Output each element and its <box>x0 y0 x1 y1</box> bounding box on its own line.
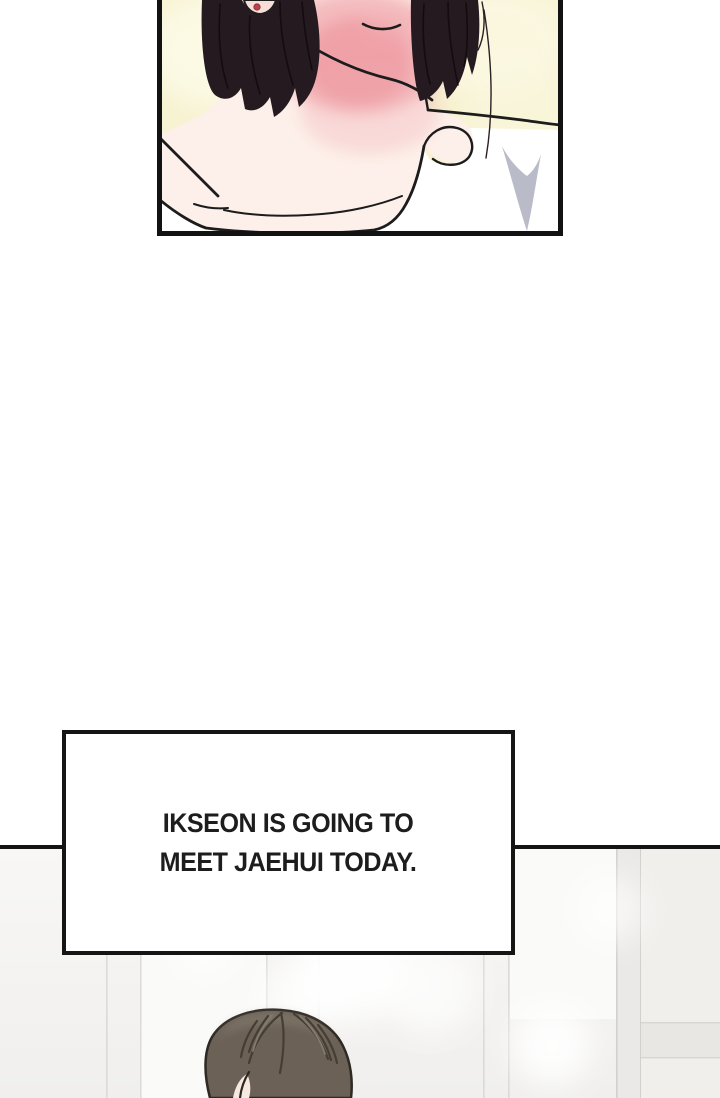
narration-box: IKSEON IS GOING TO MEET JAEHUI TODAY. <box>62 730 515 955</box>
wall-right <box>641 849 720 1098</box>
narration-line-1: IKSEON IS GOING TO <box>160 804 417 843</box>
panel-neck-closeup <box>157 0 563 236</box>
comic-page: IKSEON IS GOING TO MEET JAEHUI TODAY. <box>0 0 720 1098</box>
narration-text: IKSEON IS GOING TO MEET JAEHUI TODAY. <box>160 804 417 882</box>
earring <box>254 4 260 10</box>
wall-right-band-edge-top <box>641 1022 720 1023</box>
narration-line-2: MEET JAEHUI TODAY. <box>160 843 417 882</box>
wall-right-band-edge-bottom <box>641 1057 720 1058</box>
panel-neck-closeup-art <box>162 0 558 231</box>
wall-right-band <box>641 1023 720 1057</box>
